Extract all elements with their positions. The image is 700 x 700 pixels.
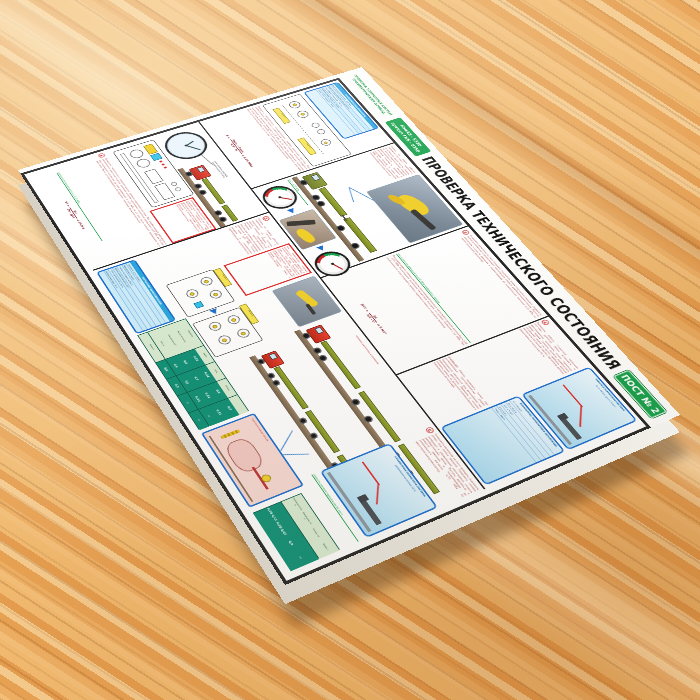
- spring-coil-shape: [220, 429, 240, 439]
- trailer-flatbed-body: [305, 410, 340, 453]
- flow-arrow-icon: [287, 208, 297, 214]
- braking-curve: [362, 462, 380, 486]
- yellow-shoe-shape: [294, 227, 318, 244]
- braking-curve: [376, 484, 379, 505]
- scheme-callout-line: [283, 454, 309, 455]
- hose-label-chip: секция II: [297, 137, 316, 155]
- indicator-cyan: [193, 301, 204, 309]
- formula-rhs: ≥ 5 м/с²: [376, 323, 387, 334]
- step-number-badge: 4: [540, 319, 550, 326]
- cluster-button-dot: [174, 187, 182, 192]
- formula-lhs: jуст =: [360, 303, 369, 312]
- flow-arrow-icon: [316, 245, 326, 252]
- hose-label-chip: секция I: [273, 108, 291, 124]
- step-number-badge: 5: [262, 215, 271, 221]
- gauge-needle: [186, 145, 200, 150]
- control-lamp-red: [159, 160, 163, 163]
- cluster-switch-outline: [144, 169, 164, 185]
- control-lamp-red: [163, 166, 167, 169]
- control-lamp-red: [161, 163, 165, 166]
- braking-curve: [563, 384, 583, 407]
- formula-rhs: ≤ 19,9 м: [76, 219, 86, 230]
- pedal-arm-shape: [286, 220, 315, 227]
- scheme-callout-line: [280, 430, 293, 451]
- cluster-dial-icon: [135, 158, 153, 169]
- gauge-needle: [332, 264, 343, 270]
- formula-lhs: Sт =: [64, 201, 71, 207]
- wood-table-background: ПРОВЕРКА ТОРМОЗНЫХ СИСТЕМ ПНЕВМАТИЧЕСКИЙ…: [0, 0, 700, 700]
- gauge-needle: [280, 197, 292, 200]
- braking-curve: [579, 406, 582, 427]
- pressure-test-gauge-icon: [310, 122, 321, 129]
- cluster-button-dot: [170, 181, 178, 186]
- pressure-test-gauge-icon: [316, 128, 327, 135]
